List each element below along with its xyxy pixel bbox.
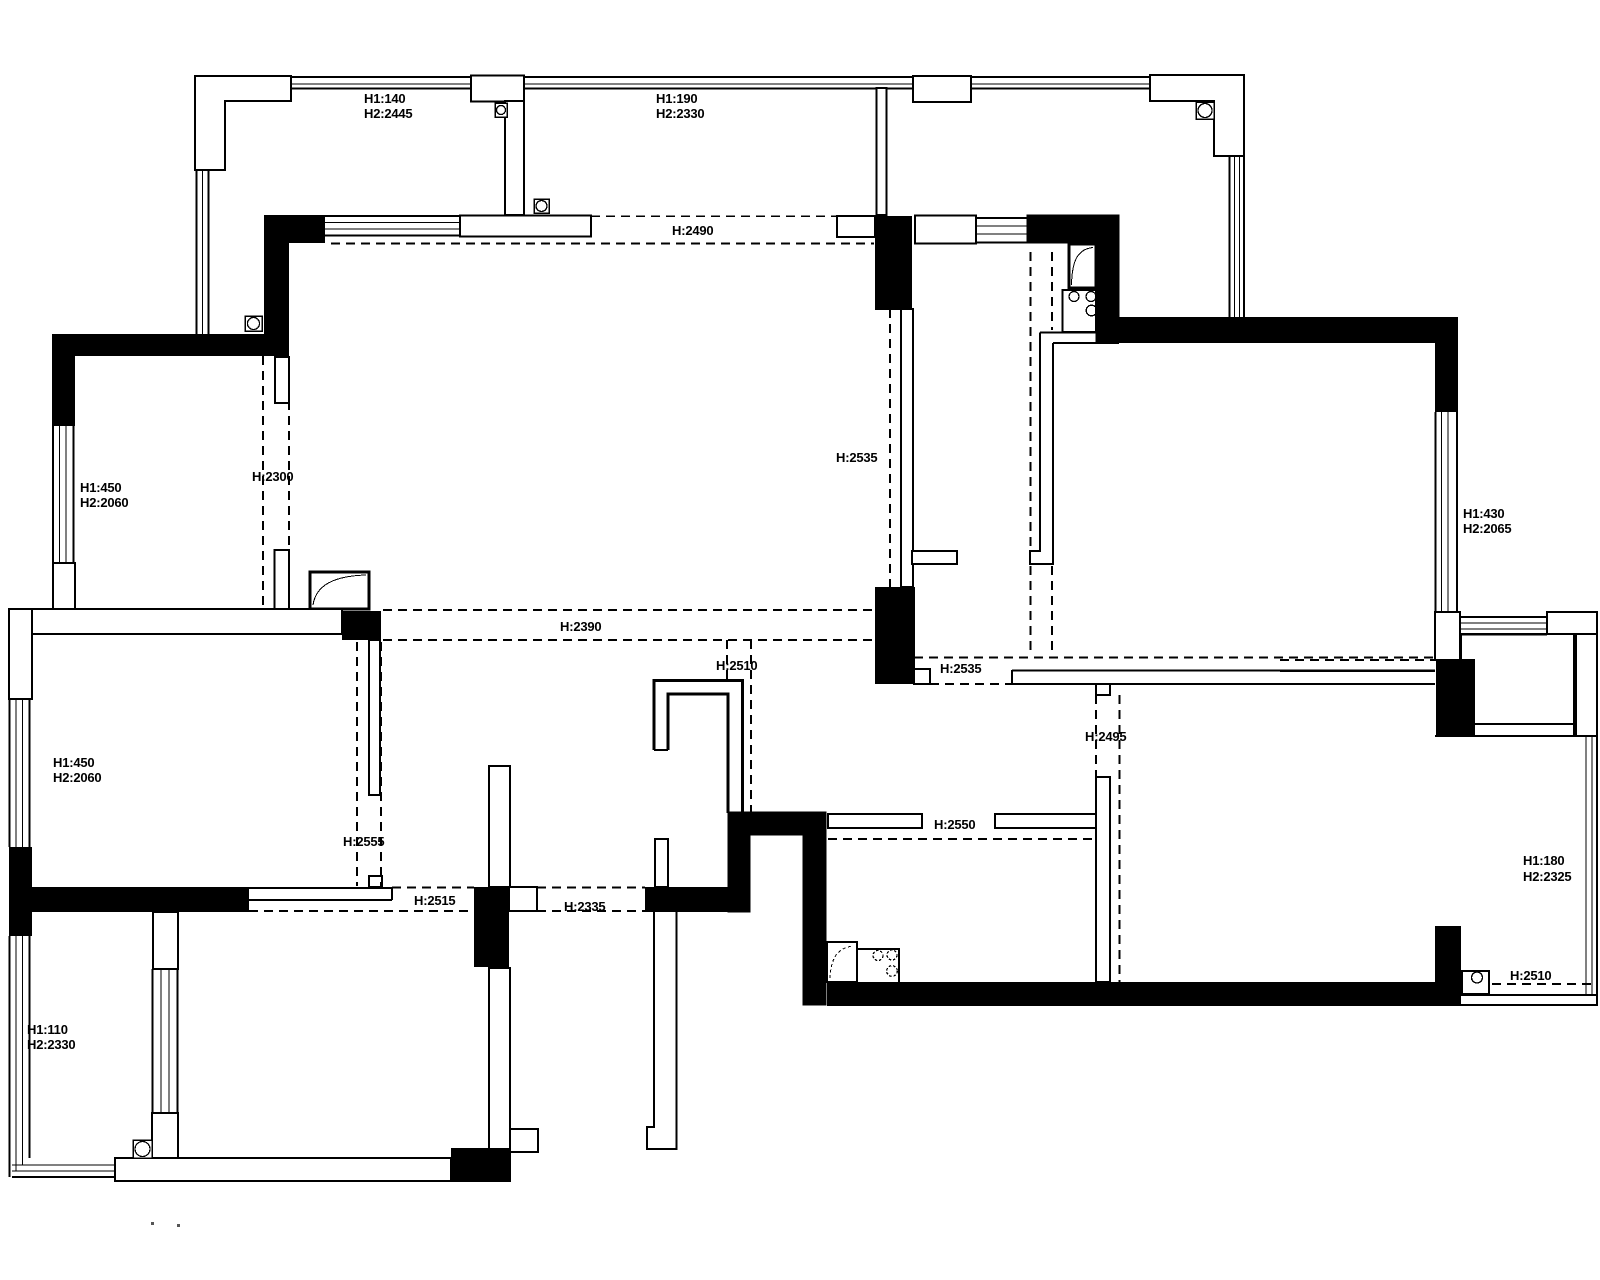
svg-text:H2:2330: H2:2330 xyxy=(656,106,704,121)
svg-text:H:2555: H:2555 xyxy=(343,834,384,849)
svg-text:H:2490: H:2490 xyxy=(672,223,713,238)
svg-text:H1:180: H1:180 xyxy=(1523,853,1564,868)
svg-text:H:2495: H:2495 xyxy=(1085,729,1126,744)
svg-text:H1:110: H1:110 xyxy=(27,1022,68,1037)
svg-text:H2:2330: H2:2330 xyxy=(27,1037,75,1052)
svg-text:H:2390: H:2390 xyxy=(560,619,601,634)
svg-text:H1:450: H1:450 xyxy=(80,480,121,495)
svg-text:H2:2060: H2:2060 xyxy=(53,770,101,785)
svg-text:H:2515: H:2515 xyxy=(414,893,455,908)
svg-text:H2:2325: H2:2325 xyxy=(1523,869,1571,884)
svg-text:H1:430: H1:430 xyxy=(1463,506,1504,521)
svg-text:H:2535: H:2535 xyxy=(940,661,981,676)
svg-text:H1:190: H1:190 xyxy=(656,91,697,106)
svg-text:H:2335: H:2335 xyxy=(564,899,605,914)
svg-text:H2:2065: H2:2065 xyxy=(1463,521,1511,536)
svg-text:H:2550: H:2550 xyxy=(934,817,975,832)
svg-text:H1:140: H1:140 xyxy=(364,91,405,106)
svg-text:H2:2060: H2:2060 xyxy=(80,495,128,510)
svg-text:H1:450: H1:450 xyxy=(53,755,94,770)
svg-text:H:2510: H:2510 xyxy=(716,658,757,673)
svg-text:H2:2445: H2:2445 xyxy=(364,106,412,121)
svg-text:H:2510: H:2510 xyxy=(1510,968,1551,983)
svg-text:H:2300: H:2300 xyxy=(252,469,293,484)
svg-text:H:2535: H:2535 xyxy=(836,450,877,465)
